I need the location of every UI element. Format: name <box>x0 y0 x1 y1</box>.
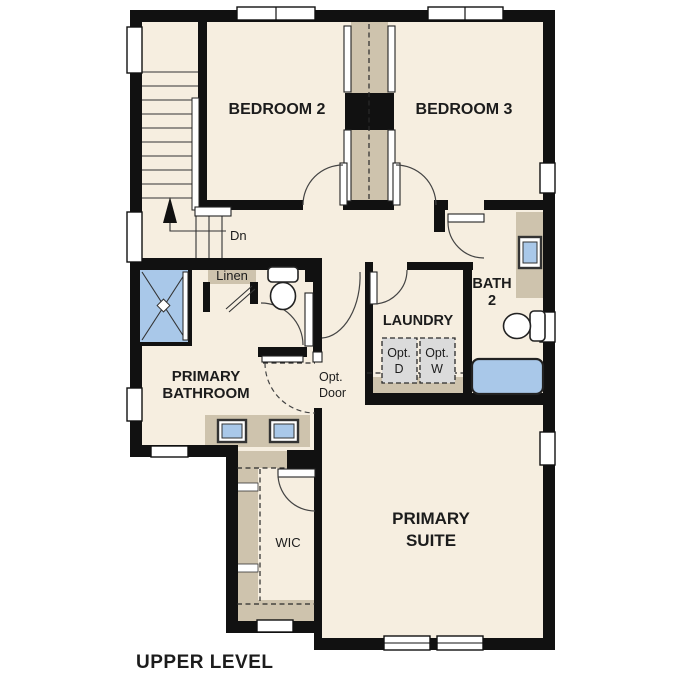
window <box>127 388 142 421</box>
bath-opening-trim <box>262 356 303 362</box>
wic-shelf-top <box>237 451 287 468</box>
laundry-appliances <box>367 338 463 383</box>
toilet-tank <box>530 311 545 341</box>
svg-text:Door: Door <box>319 386 346 400</box>
svg-text:BATHROOM: BATHROOM <box>162 385 249 402</box>
wic-shelf-gap <box>237 564 258 572</box>
corridor-trim <box>313 352 322 362</box>
bathtub <box>472 359 543 394</box>
toilet-bowl <box>504 314 531 339</box>
bath2-door <box>448 214 484 222</box>
floor-plan-page: BEDROOM 2 BEDROOM 3 Dn Linen PRIMARY BAT… <box>0 0 687 687</box>
stairs-threshold <box>195 207 231 216</box>
linen-label: Linen <box>216 268 248 283</box>
wic-shelf-bottom <box>237 600 315 621</box>
floor-plan-drawing: BEDROOM 2 BEDROOM 3 Dn Linen PRIMARY BAT… <box>0 0 687 687</box>
shower-door <box>183 272 188 340</box>
toilet-tank <box>268 267 298 282</box>
optional-washer-box <box>420 338 455 383</box>
wic-door <box>278 469 315 477</box>
toilet-bowl <box>271 283 296 310</box>
room-label-laundry: LAUNDRY <box>383 313 454 329</box>
stairs-dn-label: Dn <box>230 228 247 243</box>
room-label-bath2: BATH <box>472 276 511 292</box>
bedroom3-door <box>393 163 400 205</box>
room-label-wic: WIC <box>275 535 300 550</box>
room-label-bedroom2: BEDROOM 2 <box>229 101 326 118</box>
page-title: UPPER LEVEL <box>136 652 273 673</box>
window <box>540 432 555 465</box>
opt-door-label: Opt. <box>319 370 343 384</box>
opt-washer-label: Opt. <box>425 346 449 360</box>
window <box>151 446 188 457</box>
optional-dryer-box <box>382 338 417 383</box>
room-label-primary-suite: PRIMARY <box>392 509 470 528</box>
laundry-door <box>370 272 377 304</box>
stair-handrail <box>192 98 199 210</box>
window <box>127 27 142 73</box>
svg-text:D: D <box>394 362 403 376</box>
room-label-bedroom3: BEDROOM 3 <box>416 101 513 118</box>
window <box>127 212 142 262</box>
room-label-primary-bathroom: PRIMARY <box>172 368 241 385</box>
opt-dryer-label: Opt. <box>387 346 411 360</box>
wic-shelf-gap <box>237 483 258 491</box>
svg-text:W: W <box>431 362 443 376</box>
svg-text:2: 2 <box>488 293 496 309</box>
bedroom2-door <box>340 163 347 205</box>
hall-door <box>305 293 313 346</box>
window <box>540 163 555 193</box>
svg-text:SUITE: SUITE <box>406 531 456 550</box>
window <box>257 620 293 632</box>
